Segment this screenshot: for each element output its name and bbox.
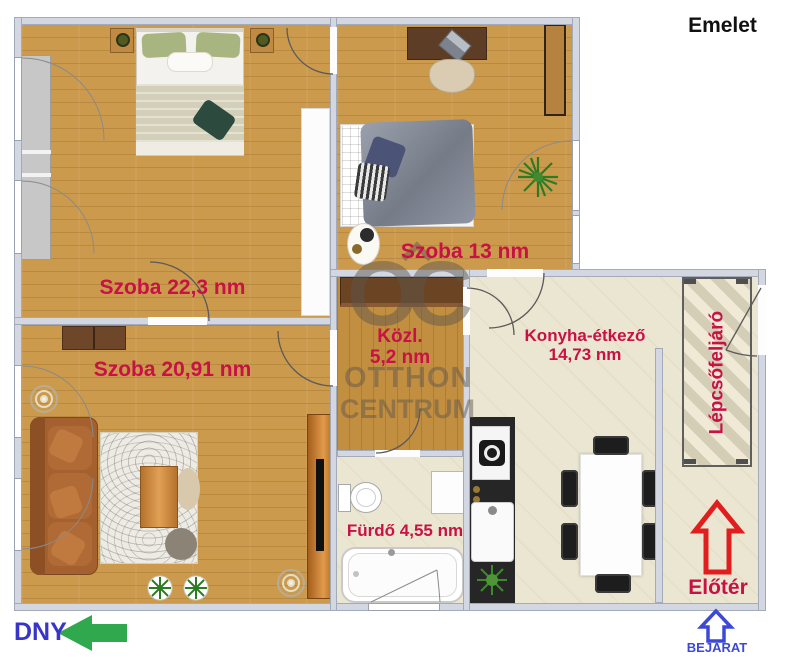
room-label-bath: Fürdő 4,55 nm [340, 521, 470, 540]
room-label-living: Szoba 20,91 nm [60, 358, 285, 382]
hall-label-line2: 5,2 nm [345, 347, 455, 368]
entrance-arrow-icon [701, 611, 731, 641]
room-label-bedroom2: Szoba 13 nm [380, 240, 550, 264]
compass-label: DNY [14, 618, 67, 647]
plant-icon [518, 157, 558, 197]
watermark-line2: CENTRUM [340, 394, 464, 425]
page-title: Emelet [680, 14, 765, 38]
entrance-label: BEJÁRAT [678, 640, 756, 655]
room-label-foyer: Előtér [672, 576, 764, 600]
foyer-arrow-icon [695, 503, 740, 572]
ceiling-lamp-icon [31, 386, 304, 596]
hall-label-line1: Közl. [345, 326, 455, 347]
kitchen-label-line2: 14,73 nm [503, 345, 667, 364]
potted-plant-icon [184, 576, 208, 600]
window-swing-arcs [22, 58, 571, 602]
room-label-kitchen: Konyha-étkező 14,73 nm [503, 326, 667, 364]
compass-arrow-icon [58, 615, 127, 651]
kitchen-label-line1: Konyha-étkező [503, 326, 667, 345]
potted-plant-icon [148, 576, 172, 600]
room-label-hall: Közl. 5,2 nm [345, 326, 455, 369]
room-label-stairs: Lépcsőfeljáró [706, 283, 727, 463]
floor-plan: OC OTTHON CENTRUM Szoba 22,3 nm Szoba 13… [0, 0, 800, 657]
plant-icon [477, 565, 507, 595]
room-label-bedroom1: Szoba 22,3 nm [60, 276, 285, 300]
